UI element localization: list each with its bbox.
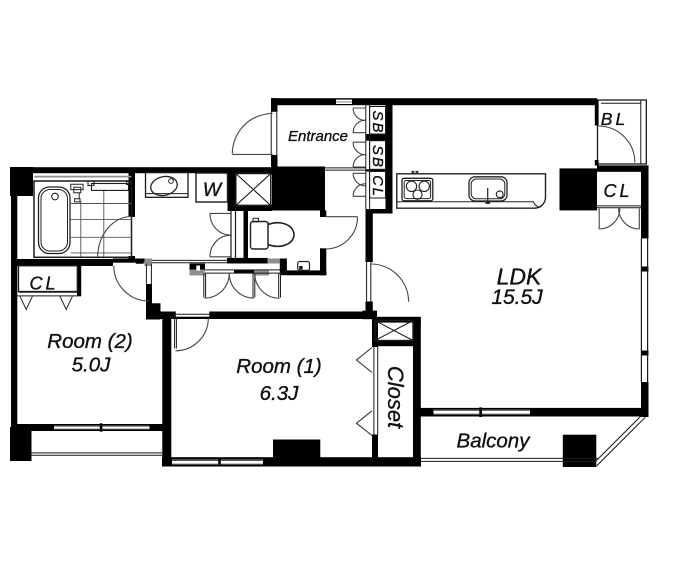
svg-text:5.0J: 5.0J: [72, 354, 111, 377]
svg-text:Balcony: Balcony: [457, 430, 532, 453]
svg-text:Entrance: Entrance: [288, 128, 348, 145]
svg-text:SB: SB: [369, 110, 386, 134]
svg-text:CL: CL: [603, 181, 632, 201]
svg-text:Room (2): Room (2): [47, 330, 132, 353]
svg-text:Room (1): Room (1): [236, 355, 321, 378]
svg-text:Closet: Closet: [383, 366, 408, 429]
svg-text:15.5J: 15.5J: [491, 286, 543, 309]
svg-text:CL: CL: [369, 175, 385, 198]
svg-text:6.3J: 6.3J: [260, 382, 299, 405]
svg-text:CL: CL: [29, 274, 58, 294]
svg-text:BL: BL: [601, 109, 628, 129]
svg-text:W: W: [203, 179, 223, 201]
svg-text:SB: SB: [369, 145, 386, 169]
